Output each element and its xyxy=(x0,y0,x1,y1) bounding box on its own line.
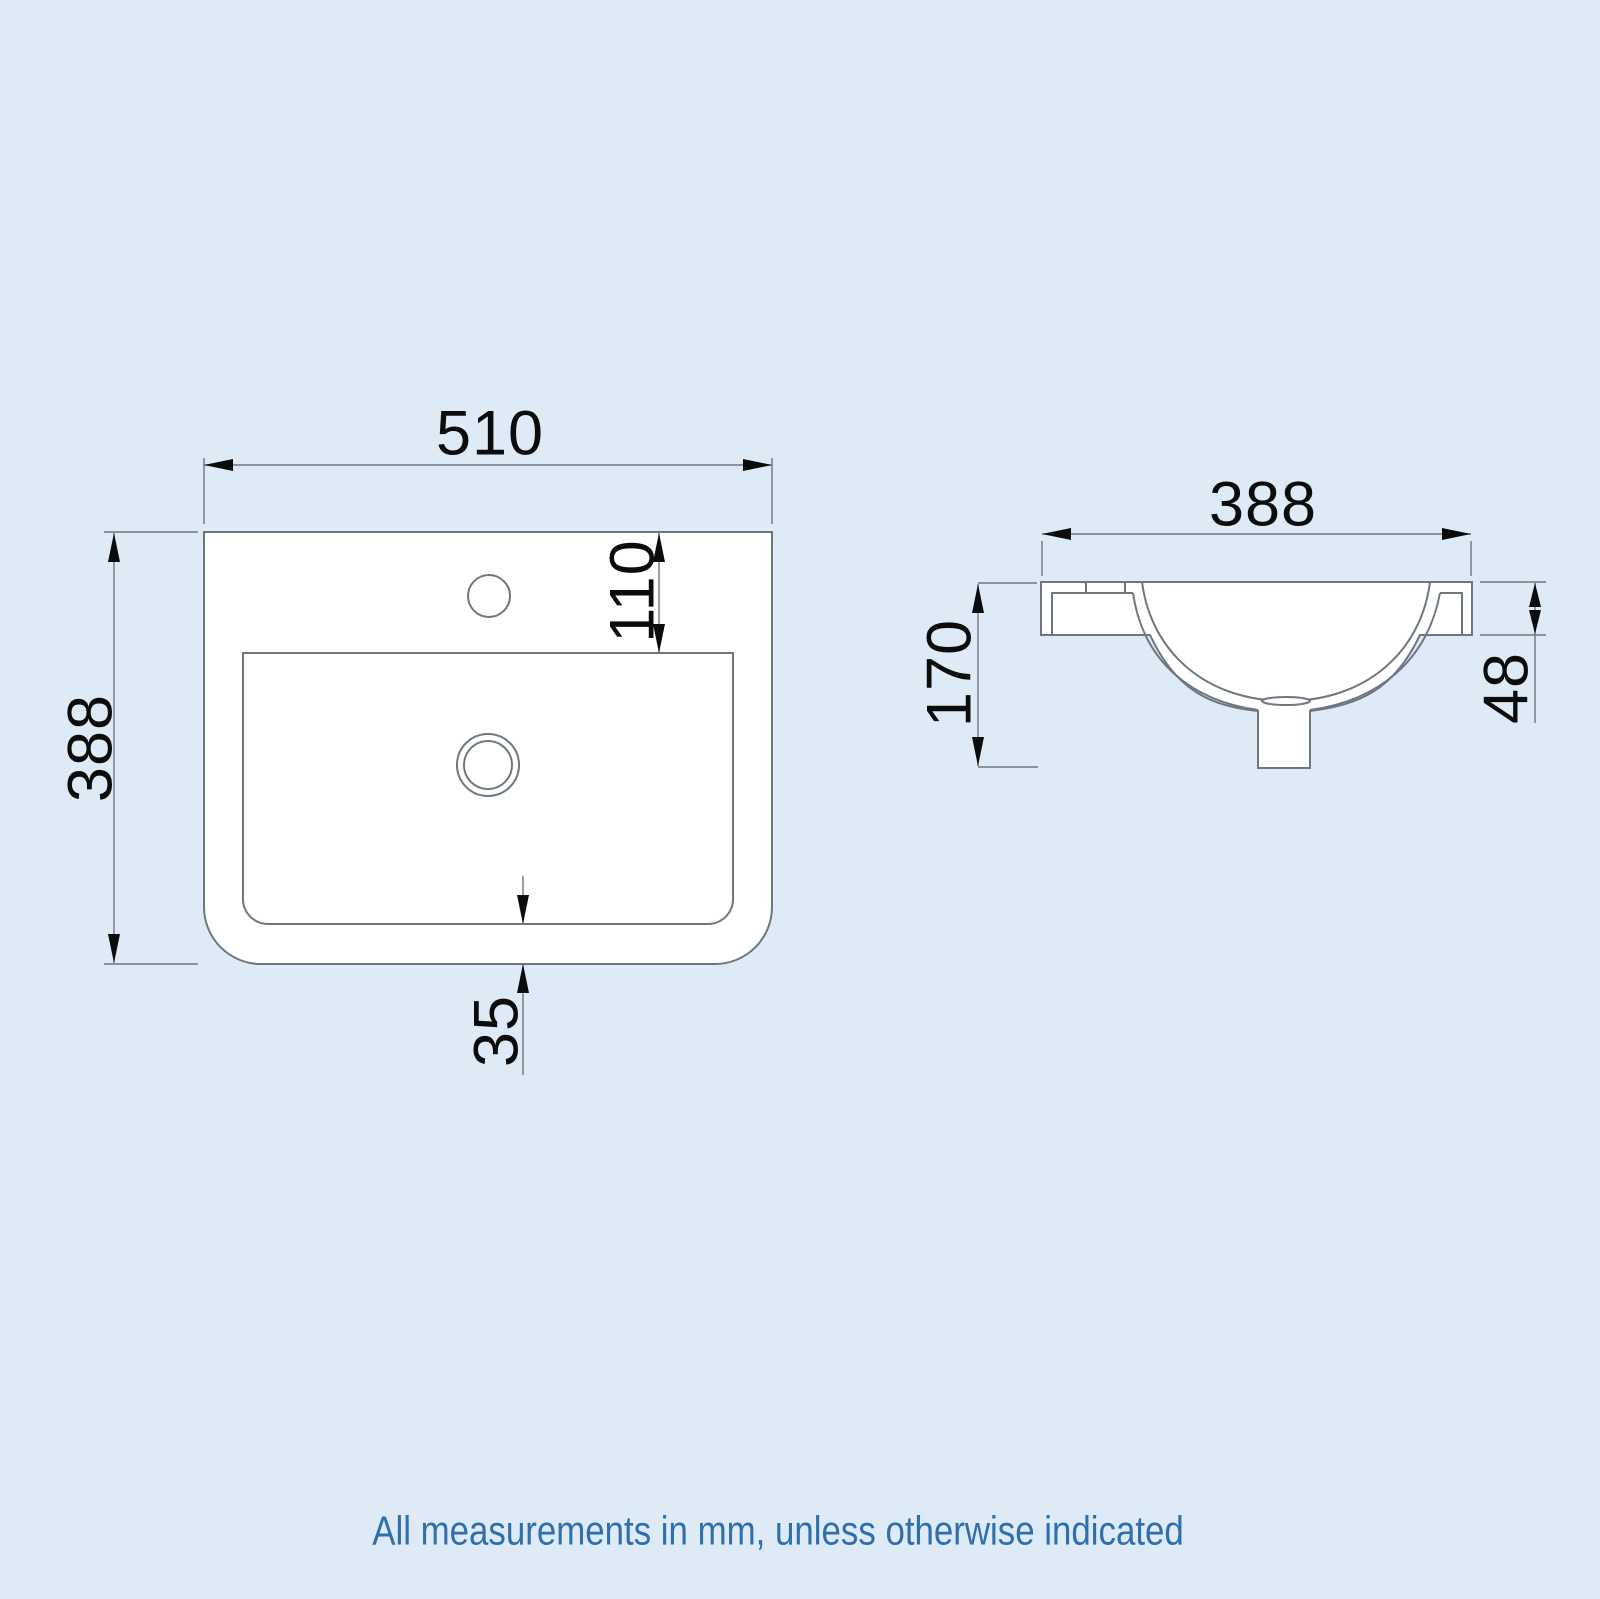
measurement-note: All measurements in mm, unless otherwise… xyxy=(372,1511,1184,1552)
side-dim-label-rim-edge: 48 xyxy=(1476,652,1539,724)
plan-dim-label-depth: 388 xyxy=(60,694,123,802)
plan-dim-label-tap-offset: 110 xyxy=(602,539,665,642)
plan-dim-label-front-lip: 35 xyxy=(466,995,529,1067)
side-drain-opening xyxy=(1262,697,1310,705)
plan-tap-hole xyxy=(468,575,510,617)
basin-linework xyxy=(0,0,1600,1599)
side-basin-silhouette xyxy=(1041,582,1472,768)
plan-drain-inner xyxy=(464,741,512,789)
side-dim-label-height: 170 xyxy=(919,619,982,727)
plan-dim-label-width: 510 xyxy=(436,403,544,466)
diagram-canvas: 510 388 110 35 388 170 48 All measuremen… xyxy=(0,0,1600,1599)
side-dim-label-width: 388 xyxy=(1209,474,1317,537)
